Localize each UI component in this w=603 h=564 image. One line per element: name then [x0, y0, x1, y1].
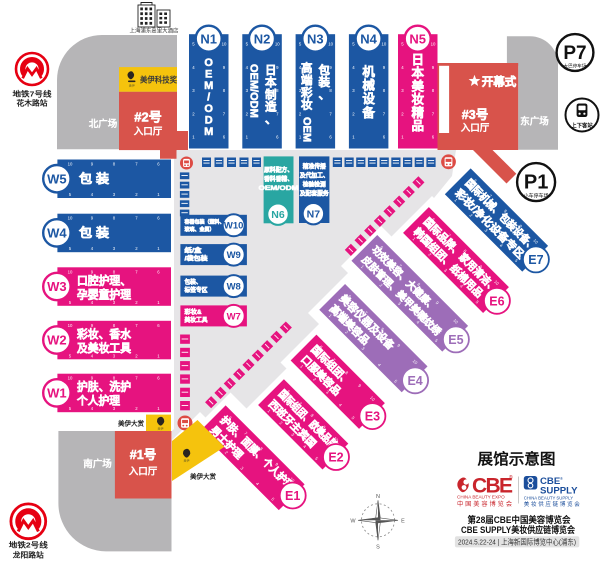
svg-text:上下客站: 上下客站 — [571, 122, 593, 130]
svg-text:检验检测: 检验检测 — [303, 181, 326, 189]
svg-text:地铁7号线: 地铁7号线 — [13, 89, 53, 99]
svg-text:M: M — [204, 80, 213, 92]
svg-text:S: S — [376, 544, 380, 550]
svg-text:E3: E3 — [365, 410, 380, 424]
svg-text:2024.5.22-24 | 上海新国际博览中心(浦东): 2024.5.22-24 | 上海新国际博览中心(浦东) — [458, 537, 576, 547]
svg-text:/: / — [207, 92, 210, 104]
svg-text:N5: N5 — [409, 31, 426, 46]
svg-text:E6: E6 — [489, 294, 504, 308]
svg-text:N3: N3 — [307, 31, 324, 46]
svg-text:及美妆工具: 及美妆工具 — [77, 341, 132, 355]
svg-text:纸/盒: 纸/盒 — [185, 247, 203, 255]
svg-text:O: O — [204, 57, 213, 69]
svg-text:包装、: 包装、 — [185, 278, 202, 286]
svg-text:香料香精、: 香料香精、 — [263, 175, 293, 183]
svg-text:入口厅: 入口厅 — [461, 123, 490, 134]
svg-text:包 装: 包 装 — [78, 225, 110, 240]
svg-text:美妆供应链博览会: 美妆供应链博览会 — [524, 500, 580, 508]
svg-text:上海浦东嘉里大酒店: 上海浦东嘉里大酒店 — [130, 27, 180, 35]
svg-text:机械设备: 机械设备 — [361, 64, 375, 120]
svg-text:E1: E1 — [285, 489, 300, 503]
svg-text:花木路站: 花木路站 — [17, 98, 49, 108]
svg-text:N6: N6 — [271, 209, 285, 221]
svg-text:北广场: 北广场 — [89, 118, 118, 130]
svg-text:N2: N2 — [254, 31, 271, 46]
svg-text:10: 10 — [382, 42, 387, 47]
svg-text:E7: E7 — [528, 253, 543, 267]
svg-text:10: 10 — [222, 42, 227, 47]
svg-text:N1: N1 — [200, 31, 217, 46]
svg-text:M: M — [204, 126, 213, 138]
svg-text:入口厅: 入口厅 — [129, 467, 158, 478]
svg-text:W: W — [350, 518, 356, 524]
svg-text:玻璃、金属）: 玻璃、金属） — [185, 225, 215, 233]
svg-text:入口厅: 入口厅 — [134, 127, 163, 138]
svg-text:10: 10 — [68, 323, 73, 328]
svg-text:个人护理: 个人护理 — [76, 394, 121, 408]
svg-text:大巴停车场: 大巴停车场 — [564, 63, 587, 70]
svg-text:第28届CBE中国美容博览会: 第28届CBE中国美容博览会 — [468, 514, 572, 525]
svg-text:®: ® — [509, 474, 513, 481]
svg-text:原料配方、: 原料配方、 — [264, 166, 293, 174]
svg-text:10: 10 — [68, 376, 73, 381]
svg-text:OEM: OEM — [301, 117, 313, 142]
svg-text:彩妆、香水: 彩妆、香水 — [76, 327, 132, 341]
svg-text:W1: W1 — [47, 386, 67, 401]
svg-text:龙阳路站: 龙阳路站 — [13, 550, 45, 560]
svg-text:口腔护理、: 口腔护理、 — [77, 273, 131, 287]
svg-text:CHINA BEAUTY SUPPLY: CHINA BEAUTY SUPPLY — [524, 496, 573, 501]
svg-text:及配套服务: 及配套服务 — [300, 190, 330, 198]
svg-text:及代加工、: 及代加工、 — [300, 172, 329, 180]
svg-text:美伊: 美伊 — [157, 426, 163, 431]
svg-text:美伊: 美伊 — [129, 83, 135, 88]
svg-text:10: 10 — [68, 162, 73, 167]
svg-text:10: 10 — [328, 42, 333, 47]
svg-text:OEM/ODM: OEM/ODM — [259, 185, 299, 192]
svg-text:N7: N7 — [307, 208, 321, 220]
svg-text:展馆示意图: 展馆示意图 — [478, 450, 556, 468]
svg-text:10: 10 — [68, 216, 73, 221]
svg-text:美妆工具: 美妆工具 — [184, 316, 208, 324]
svg-text:高端彩妆: 高端彩妆 — [300, 61, 313, 112]
svg-text:南广场: 南广场 — [83, 458, 112, 470]
svg-text:E4: E4 — [407, 374, 422, 388]
svg-text:#3号: #3号 — [462, 107, 488, 122]
svg-text:标签专区: 标签专区 — [184, 286, 208, 294]
svg-text:开幕式: 开幕式 — [482, 75, 517, 89]
svg-text:包装、: 包装、 — [317, 63, 330, 101]
svg-text:护肤、洗护: 护肤、洗护 — [77, 380, 131, 394]
svg-text:彩妆&: 彩妆& — [183, 308, 202, 316]
svg-text:W7: W7 — [227, 311, 241, 322]
svg-text:美伊科技奖: 美伊科技奖 — [140, 75, 178, 85]
svg-text:OEM/ODM: OEM/ODM — [248, 64, 260, 118]
svg-text:P1: P1 — [524, 172, 548, 194]
svg-text:10: 10 — [68, 269, 73, 274]
svg-text:O: O — [204, 103, 213, 115]
svg-text:小车停车场: 小车停车场 — [524, 193, 549, 200]
svg-text:10: 10 — [431, 42, 436, 47]
svg-text:CBE SUPPLY美妆供应链博览会: CBE SUPPLY美妆供应链博览会 — [461, 524, 576, 535]
svg-text:W9: W9 — [227, 250, 241, 261]
svg-text:P7: P7 — [563, 43, 586, 64]
svg-text:日本美妆精品: 日本美妆精品 — [411, 53, 424, 133]
svg-text:W8: W8 — [227, 282, 241, 293]
svg-text:W5: W5 — [47, 171, 67, 186]
svg-text:地铁2号线: 地铁2号线 — [9, 540, 49, 550]
svg-text:W2: W2 — [47, 333, 67, 348]
svg-text:E: E — [205, 69, 212, 81]
svg-text:容器包装（塑料、: 容器包装（塑料、 — [184, 217, 225, 225]
svg-text:CHINA BEAUTY EXPO: CHINA BEAUTY EXPO — [457, 495, 505, 500]
svg-text:N: N — [376, 494, 380, 500]
svg-text:美伊: 美伊 — [183, 458, 189, 463]
svg-text:D: D — [205, 115, 213, 127]
svg-text:美伊大赏: 美伊大赏 — [190, 472, 217, 481]
svg-text:E2: E2 — [328, 451, 343, 465]
svg-text:10: 10 — [275, 42, 280, 47]
svg-text:包 装: 包 装 — [78, 171, 110, 186]
svg-text:E: E — [401, 518, 405, 524]
svg-text:W4: W4 — [47, 226, 67, 241]
svg-text:N4: N4 — [360, 31, 377, 46]
svg-text:W3: W3 — [47, 279, 67, 294]
svg-text:E5: E5 — [448, 333, 463, 347]
svg-text:#1号: #1号 — [130, 447, 156, 462]
svg-text:/袋包装: /袋包装 — [185, 255, 208, 263]
svg-text:东广场: 东广场 — [520, 116, 549, 128]
svg-text:孕婴童护理: 孕婴童护理 — [77, 287, 132, 301]
svg-text:日本制造、: 日本制造、 — [265, 64, 277, 126]
svg-text:精准传播: 精准传播 — [303, 163, 327, 171]
svg-text:中国美容博览会: 中国美容博览会 — [457, 500, 512, 508]
svg-text:W10: W10 — [224, 221, 244, 232]
svg-text:®: ® — [560, 476, 563, 481]
svg-text:美伊大赏: 美伊大赏 — [118, 419, 145, 428]
svg-text:#2号: #2号 — [134, 110, 161, 125]
